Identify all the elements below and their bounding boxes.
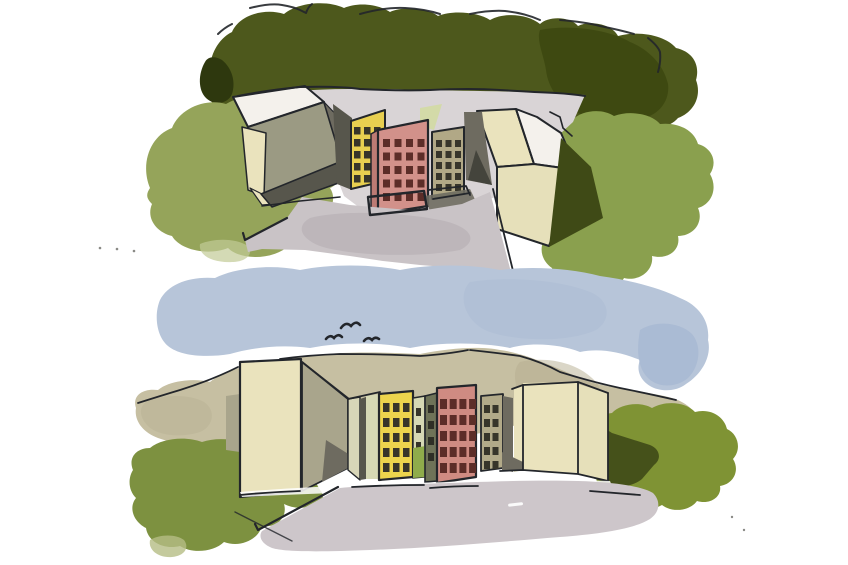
window — [383, 418, 390, 427]
window — [383, 180, 390, 188]
window — [406, 153, 413, 161]
window — [450, 415, 457, 425]
window — [406, 139, 413, 147]
window — [493, 433, 499, 441]
dark-sliver-wall — [360, 397, 366, 480]
window — [416, 425, 421, 433]
cream-wall-left-face — [240, 359, 301, 497]
window — [403, 418, 410, 427]
window — [455, 162, 461, 169]
sketch-dots — [99, 247, 136, 253]
pale-wall — [348, 397, 360, 480]
window — [484, 433, 490, 441]
olive-building — [481, 394, 503, 471]
pink-tower — [371, 120, 428, 216]
window — [484, 419, 490, 427]
window — [446, 151, 452, 158]
window — [428, 437, 434, 445]
cream-wall-left — [240, 359, 301, 497]
window — [428, 421, 434, 429]
window — [354, 163, 361, 171]
window — [364, 175, 371, 183]
window — [393, 418, 400, 427]
watercolor-illustration — [0, 0, 848, 565]
window — [393, 448, 400, 457]
window — [446, 162, 452, 169]
window — [493, 447, 499, 455]
window — [393, 403, 400, 412]
window — [395, 180, 402, 188]
left-olive-sliver-wall — [226, 394, 240, 452]
window — [440, 463, 447, 473]
window — [493, 405, 499, 413]
window — [418, 166, 425, 174]
window — [493, 419, 499, 427]
cream-wall-right-panel-b — [523, 382, 578, 473]
scene-top-aerial-view — [99, 3, 714, 290]
sky-dark-lobe — [638, 324, 698, 386]
yellow-building — [379, 391, 413, 480]
window — [354, 151, 361, 159]
window — [364, 163, 371, 171]
window — [354, 139, 361, 147]
window — [455, 140, 461, 147]
window — [469, 399, 476, 409]
window — [459, 447, 466, 457]
window — [383, 153, 390, 161]
pink-building — [437, 385, 476, 483]
window — [469, 415, 476, 425]
window — [383, 403, 390, 412]
bottom-left-bush-pale — [150, 536, 187, 558]
window — [459, 431, 466, 441]
window — [493, 461, 499, 469]
window — [436, 162, 442, 169]
window — [469, 463, 476, 473]
window — [428, 405, 434, 413]
window — [364, 127, 371, 135]
window — [393, 463, 400, 472]
sketch-specks — [731, 516, 745, 531]
window — [459, 415, 466, 425]
window — [455, 151, 461, 158]
window — [416, 408, 421, 416]
window — [446, 140, 452, 147]
window — [383, 166, 390, 174]
cream-wall-right-panel-c — [578, 384, 608, 481]
window — [459, 399, 466, 409]
window — [436, 173, 442, 180]
olive-sliver-building — [425, 393, 437, 482]
window — [395, 166, 402, 174]
window — [354, 175, 361, 183]
window — [383, 463, 390, 472]
window — [436, 140, 442, 147]
window — [403, 448, 410, 457]
window — [450, 399, 457, 409]
pale-strip-wall — [366, 394, 379, 479]
window — [418, 139, 425, 147]
window — [440, 415, 447, 425]
cream-wall-right — [500, 382, 608, 481]
window — [406, 166, 413, 174]
window — [440, 399, 447, 409]
window — [459, 463, 466, 473]
window — [364, 151, 371, 159]
window — [354, 127, 361, 135]
pale-sliver-windows — [416, 408, 421, 450]
window — [446, 173, 452, 180]
window — [418, 180, 425, 188]
window — [383, 433, 390, 442]
window — [383, 448, 390, 457]
window — [364, 139, 371, 147]
window — [403, 433, 410, 442]
window — [469, 447, 476, 457]
window — [406, 180, 413, 188]
window — [484, 447, 490, 455]
window — [428, 453, 434, 461]
window — [450, 431, 457, 441]
window — [403, 403, 410, 412]
window — [484, 461, 490, 469]
window — [406, 193, 413, 201]
window — [393, 433, 400, 442]
window — [418, 153, 425, 161]
scene-bottom-street-view — [130, 266, 746, 558]
window — [395, 153, 402, 161]
window — [450, 463, 457, 473]
window — [403, 463, 410, 472]
window — [440, 447, 447, 457]
window — [450, 447, 457, 457]
window — [383, 139, 390, 147]
window — [395, 139, 402, 147]
window — [436, 151, 442, 158]
window — [484, 405, 490, 413]
window — [440, 431, 447, 441]
window — [455, 173, 461, 180]
green-bush-gap — [413, 446, 426, 478]
window — [469, 431, 476, 441]
